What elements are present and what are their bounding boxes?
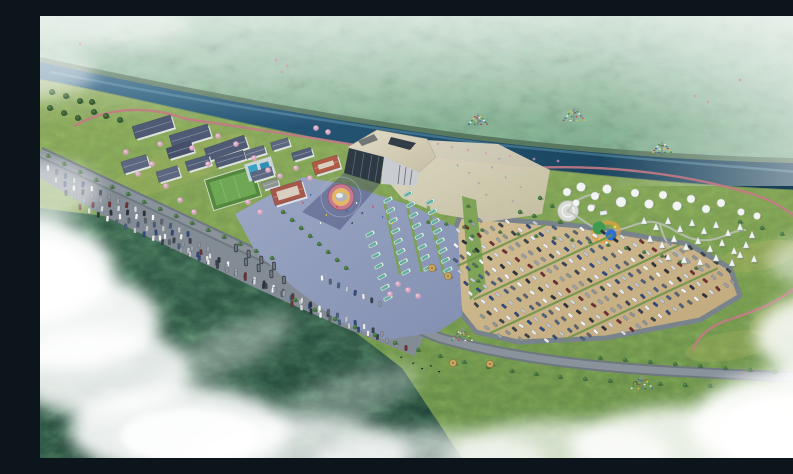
tree-icon: [558, 375, 560, 377]
parked-shuttle: [257, 264, 261, 272]
prayer-flag: [468, 336, 470, 337]
tree-icon: [738, 220, 740, 222]
prayer-flag: [664, 152, 666, 153]
tree-icon: [598, 356, 600, 358]
tree-icon: [481, 228, 483, 230]
dome-tent-icon: [631, 189, 639, 197]
parked-car: [100, 206, 103, 212]
parked-shuttle: [259, 256, 263, 264]
prayer-flag: [658, 144, 660, 145]
parked-car: [337, 283, 340, 289]
parked-car: [162, 226, 165, 232]
parked-car: [225, 267, 228, 273]
prayer-flag: [638, 379, 640, 380]
blossom-speck: [275, 59, 278, 62]
dome-tent-icon: [673, 202, 682, 211]
prayer-flag: [577, 111, 579, 112]
tree-icon: [110, 185, 112, 187]
tree-icon: [393, 341, 395, 343]
prayer-flag: [464, 336, 466, 337]
parked-car: [188, 251, 191, 257]
parked-car: [152, 235, 155, 241]
dome-tent-icon: [616, 197, 626, 207]
parked-car: [282, 291, 285, 297]
gravel-vehicle: [498, 158, 501, 160]
parked-car: [160, 219, 163, 225]
tree-icon: [683, 383, 685, 385]
dome-tent-icon: [717, 199, 725, 207]
parked-car: [178, 243, 181, 249]
prayer-flag: [456, 333, 458, 334]
tree-icon: [633, 381, 635, 383]
tree-icon: [661, 254, 663, 256]
prayer-flag: [460, 332, 462, 333]
prayer-flag: [663, 149, 665, 150]
dome-tent-icon: [588, 205, 595, 212]
prayer-flag: [662, 145, 664, 146]
tree-icon: [698, 364, 700, 366]
tree-icon: [293, 298, 295, 300]
parked-shuttle: [269, 270, 273, 278]
tree-icon: [608, 379, 610, 381]
parked-car: [362, 294, 365, 300]
prayer-flag: [469, 338, 471, 339]
right-mountain-haze: [600, 16, 793, 186]
tree-icon: [477, 279, 479, 281]
tree-icon: [254, 249, 256, 251]
prayer-flag: [474, 124, 476, 125]
parked-car: [108, 202, 111, 208]
tree-icon: [190, 221, 192, 223]
parked-car: [207, 259, 210, 265]
prayer-flag: [478, 117, 480, 118]
prayer-flag: [646, 381, 648, 382]
tree-icon: [78, 99, 81, 102]
blossom-speck: [533, 158, 536, 161]
parked-car: [199, 249, 202, 255]
blossom-speck: [739, 79, 742, 82]
prayer-flag: [565, 118, 567, 119]
prayer-flag: [473, 118, 475, 119]
dome-tent-icon: [702, 205, 710, 213]
tree-icon: [571, 238, 573, 240]
prayer-flag: [645, 388, 647, 389]
tree-icon: [90, 100, 93, 103]
parked-car: [117, 206, 120, 212]
parked-car: [88, 208, 91, 214]
parked-car: [319, 312, 322, 318]
parked-car: [189, 238, 192, 244]
scene-canvas: Aerial rendering of riverside visitor-ce…: [40, 16, 793, 458]
dome-tent-icon: [563, 188, 571, 196]
blossom-tree-icon: [388, 292, 391, 295]
blossom-tree-icon: [266, 168, 269, 171]
blossom-tree-icon: [314, 126, 317, 129]
tree-icon: [326, 250, 328, 252]
parked-car: [300, 298, 303, 304]
parked-car: [318, 305, 321, 311]
tree-icon: [499, 230, 501, 232]
prayer-flag: [669, 150, 671, 151]
tree-icon: [679, 260, 681, 262]
blossom-speck: [509, 155, 512, 158]
parked-car: [309, 302, 312, 308]
prayer-flag: [575, 112, 577, 113]
parked-car: [207, 246, 210, 252]
tree-icon: [238, 242, 240, 244]
aerial-rendering: Aerial rendering of riverside visitor-ce…: [40, 16, 793, 458]
blossom-tree-icon: [190, 146, 193, 149]
prayer-flag: [582, 118, 584, 119]
tree-icon: [126, 192, 128, 194]
blossom-tree-icon: [124, 150, 127, 153]
parked-car: [153, 222, 156, 228]
prayer-flag: [563, 120, 565, 121]
parked-car: [209, 253, 212, 259]
prayer-flag: [480, 124, 482, 125]
blossom-tree-icon: [178, 198, 181, 201]
prayer-flag: [584, 120, 586, 121]
tree-icon: [471, 234, 473, 236]
blossom-speck: [485, 152, 488, 155]
prayer-flag: [667, 148, 669, 149]
prayer-flag: [572, 112, 574, 113]
tree-icon: [673, 362, 675, 364]
parked-car: [370, 297, 373, 303]
parked-car: [273, 287, 276, 293]
tree-icon: [623, 358, 625, 360]
prayer-flag: [670, 152, 672, 153]
prayer-flag: [652, 152, 654, 153]
prayer-flag: [471, 340, 473, 341]
parked-car: [178, 227, 181, 233]
dome-tent-icon: [603, 185, 612, 194]
prayer-flag: [474, 116, 476, 117]
blossom-speck: [451, 146, 454, 149]
prayer-flag: [458, 331, 460, 332]
tree-icon: [467, 204, 469, 206]
tree-icon: [290, 218, 292, 220]
tree-icon: [695, 266, 697, 268]
parked-car: [329, 279, 332, 285]
tree-icon: [558, 220, 560, 222]
parked-car: [109, 210, 112, 216]
dome-tent-icon: [577, 183, 586, 192]
tree-icon: [535, 234, 537, 236]
blossom-speck: [467, 149, 470, 152]
tree-icon: [416, 348, 418, 350]
tree-icon: [427, 220, 429, 222]
parked-car: [253, 279, 256, 285]
parked-car: [164, 234, 167, 240]
parked-car: [173, 237, 176, 243]
tree-icon: [463, 225, 465, 227]
blossom-tree-icon: [308, 176, 311, 179]
parked-car: [108, 194, 111, 200]
blossom-speck: [694, 95, 697, 98]
tree-icon: [550, 204, 552, 206]
tree-icon: [532, 214, 534, 216]
prayer-flag: [455, 336, 457, 337]
prayer-flag: [660, 145, 662, 146]
gravel-vehicle: [485, 194, 488, 196]
parked-car: [134, 228, 137, 234]
blossom-speck: [437, 143, 440, 146]
parked-car: [151, 215, 154, 221]
tree-icon: [517, 232, 519, 234]
parked-car: [143, 211, 146, 217]
tree-icon: [589, 240, 591, 242]
tree-icon: [473, 249, 475, 251]
prayer-flag: [652, 388, 654, 389]
parked-car: [310, 309, 313, 315]
tree-icon: [158, 207, 160, 209]
prayer-flag: [636, 381, 638, 382]
tree-icon: [317, 242, 319, 244]
prayer-flag: [577, 120, 579, 121]
tree-icon: [299, 226, 301, 228]
parked-car: [198, 242, 201, 248]
parked-car: [328, 316, 331, 322]
parked-shuttle: [234, 244, 238, 252]
tree-icon: [445, 222, 447, 224]
parked-shuttle: [272, 262, 276, 270]
parked-car: [144, 218, 147, 224]
parked-car: [290, 301, 293, 307]
prayer-flag: [464, 331, 466, 332]
prayer-flag: [475, 121, 477, 122]
dome-tent-icon: [659, 191, 667, 199]
prayer-flag: [643, 380, 645, 381]
prayer-flag: [570, 120, 572, 121]
dome-tent-icon: [573, 200, 580, 207]
parked-car: [385, 338, 388, 344]
parked-car: [106, 216, 109, 222]
parked-car: [244, 275, 247, 281]
prayer-flag: [459, 336, 461, 337]
blossom-tree-icon: [258, 210, 261, 213]
prayer-flag: [645, 379, 647, 380]
flower-medallion: [328, 184, 354, 210]
prayer-flag: [570, 111, 572, 112]
tree-icon: [475, 264, 477, 266]
parked-car: [181, 241, 184, 247]
prayer-flag: [650, 386, 652, 387]
tree-icon: [222, 235, 224, 237]
tree-icon: [708, 384, 710, 386]
tree-icon: [46, 154, 48, 156]
prayer-flag: [470, 122, 472, 123]
blossom-tree-icon: [406, 288, 409, 291]
parked-car: [345, 286, 348, 292]
prayer-flag: [483, 120, 485, 121]
tree-icon: [462, 360, 464, 362]
parked-car: [379, 301, 382, 307]
tree-icon: [308, 234, 310, 236]
tree-icon: [281, 210, 283, 212]
parked-car: [128, 218, 131, 224]
blossom-tree-icon: [164, 184, 167, 187]
prayer-flag: [465, 340, 467, 341]
parked-car: [145, 226, 148, 232]
pedestrian: [356, 202, 357, 204]
blossom-speck: [281, 71, 284, 74]
tree-icon: [469, 219, 471, 221]
prayer-flag: [458, 340, 460, 341]
parked-car: [300, 305, 303, 311]
tree-icon: [118, 118, 121, 121]
tree-icon: [658, 382, 660, 384]
tree-icon: [62, 111, 65, 114]
parked-shuttle: [247, 250, 251, 258]
blossom-tree-icon: [396, 282, 399, 285]
tree-icon: [723, 366, 725, 368]
prayer-flag: [633, 386, 635, 387]
grazing-yak: [421, 368, 423, 369]
parked-car: [405, 345, 408, 351]
parked-car: [347, 323, 350, 329]
tree-icon: [538, 196, 540, 198]
blossom-speck: [286, 65, 289, 68]
hut-roof-peak: [447, 275, 449, 277]
prayer-flag: [480, 116, 482, 117]
prayer-flag: [639, 384, 641, 385]
parked-car: [158, 235, 161, 241]
dome-tent-icon: [738, 209, 745, 216]
tree-icon: [553, 236, 555, 238]
tree-icon: [625, 246, 627, 248]
prayer-flag: [657, 146, 659, 147]
tree-icon: [76, 116, 79, 119]
prayer-flag: [655, 148, 657, 149]
parked-shuttle: [244, 258, 248, 266]
prayer-flag: [566, 115, 568, 116]
prayer-flag: [664, 144, 666, 145]
tree-icon: [353, 325, 355, 327]
prayer-flag: [666, 146, 668, 147]
blossom-speck: [557, 160, 560, 163]
blossom-tree-icon: [206, 162, 209, 165]
parked-car: [143, 231, 146, 237]
prayer-flag: [453, 338, 455, 339]
parked-car: [136, 222, 139, 228]
dome-tent-icon: [754, 213, 761, 220]
blossom-tree-icon: [294, 166, 297, 169]
tree-icon: [373, 333, 375, 335]
tree-icon: [607, 243, 609, 245]
parked-car: [345, 316, 348, 322]
tree-icon: [780, 232, 782, 234]
prayer-flag: [658, 152, 660, 153]
blossom-tree-icon: [234, 142, 237, 145]
grazing-yak: [438, 371, 440, 372]
prayer-flag: [644, 384, 646, 385]
prayer-flag: [568, 113, 570, 114]
tree-icon: [333, 317, 335, 319]
tree-icon: [438, 354, 440, 356]
parked-car: [97, 212, 100, 218]
prayer-flag: [576, 116, 578, 117]
parked-car: [99, 197, 102, 203]
parked-car: [168, 239, 171, 245]
dome-tent-icon: [687, 195, 695, 203]
tree-icon: [313, 308, 315, 310]
parked-car: [116, 198, 119, 204]
parked-car: [198, 255, 201, 261]
blossom-tree-icon: [416, 294, 419, 297]
tree-icon: [206, 228, 208, 230]
tree-icon: [760, 226, 762, 228]
blossom-tree-icon: [252, 156, 255, 159]
dome-tent-icon: [591, 192, 599, 200]
tree-icon: [64, 94, 67, 97]
parked-car: [154, 230, 157, 236]
blossom-tree-icon: [216, 134, 219, 137]
prayer-flag: [634, 383, 636, 384]
parked-car: [264, 283, 267, 289]
prayer-flag: [468, 124, 470, 125]
blossom-tree-icon: [278, 174, 281, 177]
tree-icon: [583, 377, 585, 379]
parked-car: [327, 309, 330, 315]
prayer-flag: [479, 121, 481, 122]
hut-roof-peak: [489, 363, 491, 365]
tree-icon: [104, 114, 107, 117]
parked-car: [187, 231, 190, 237]
blossom-tree-icon: [150, 162, 153, 165]
tree-icon: [174, 214, 176, 216]
blossom-tree-icon: [136, 172, 139, 175]
parked-car: [171, 230, 174, 236]
parked-car: [115, 220, 118, 226]
prayer-flag: [482, 118, 484, 119]
prayer-flag: [659, 149, 661, 150]
gravel-vehicle: [468, 172, 471, 174]
prayer-flag: [485, 122, 487, 123]
tree-icon: [648, 360, 650, 362]
tree-icon: [643, 250, 645, 252]
prayer-flag: [476, 117, 478, 118]
parked-shuttle: [282, 276, 286, 284]
blossom-tree-icon: [326, 130, 329, 133]
prayer-flag: [654, 150, 656, 151]
tree-icon: [510, 369, 512, 371]
parked-car: [216, 263, 219, 269]
prayer-flag: [463, 332, 465, 333]
tree-icon: [142, 200, 144, 202]
prayer-flag: [466, 333, 468, 334]
prayer-flag: [471, 120, 473, 121]
prayer-flag: [640, 380, 642, 381]
prayer-flag: [638, 388, 640, 389]
tree-icon: [518, 210, 520, 212]
prayer-flag: [580, 115, 582, 116]
tree-icon: [344, 266, 346, 268]
tree-icon: [270, 256, 272, 258]
tree-icon: [335, 258, 337, 260]
prayer-flag: [451, 340, 453, 341]
blossom-tree-icon: [158, 142, 161, 145]
parked-car: [372, 327, 375, 333]
parked-car: [126, 210, 129, 216]
pedestrian: [320, 222, 321, 224]
tree-icon: [748, 368, 750, 370]
parked-car: [380, 331, 383, 337]
tree-icon: [48, 106, 51, 109]
prayer-flag: [578, 113, 580, 114]
hut-roof-peak: [431, 267, 433, 269]
blossom-speck: [707, 101, 710, 104]
